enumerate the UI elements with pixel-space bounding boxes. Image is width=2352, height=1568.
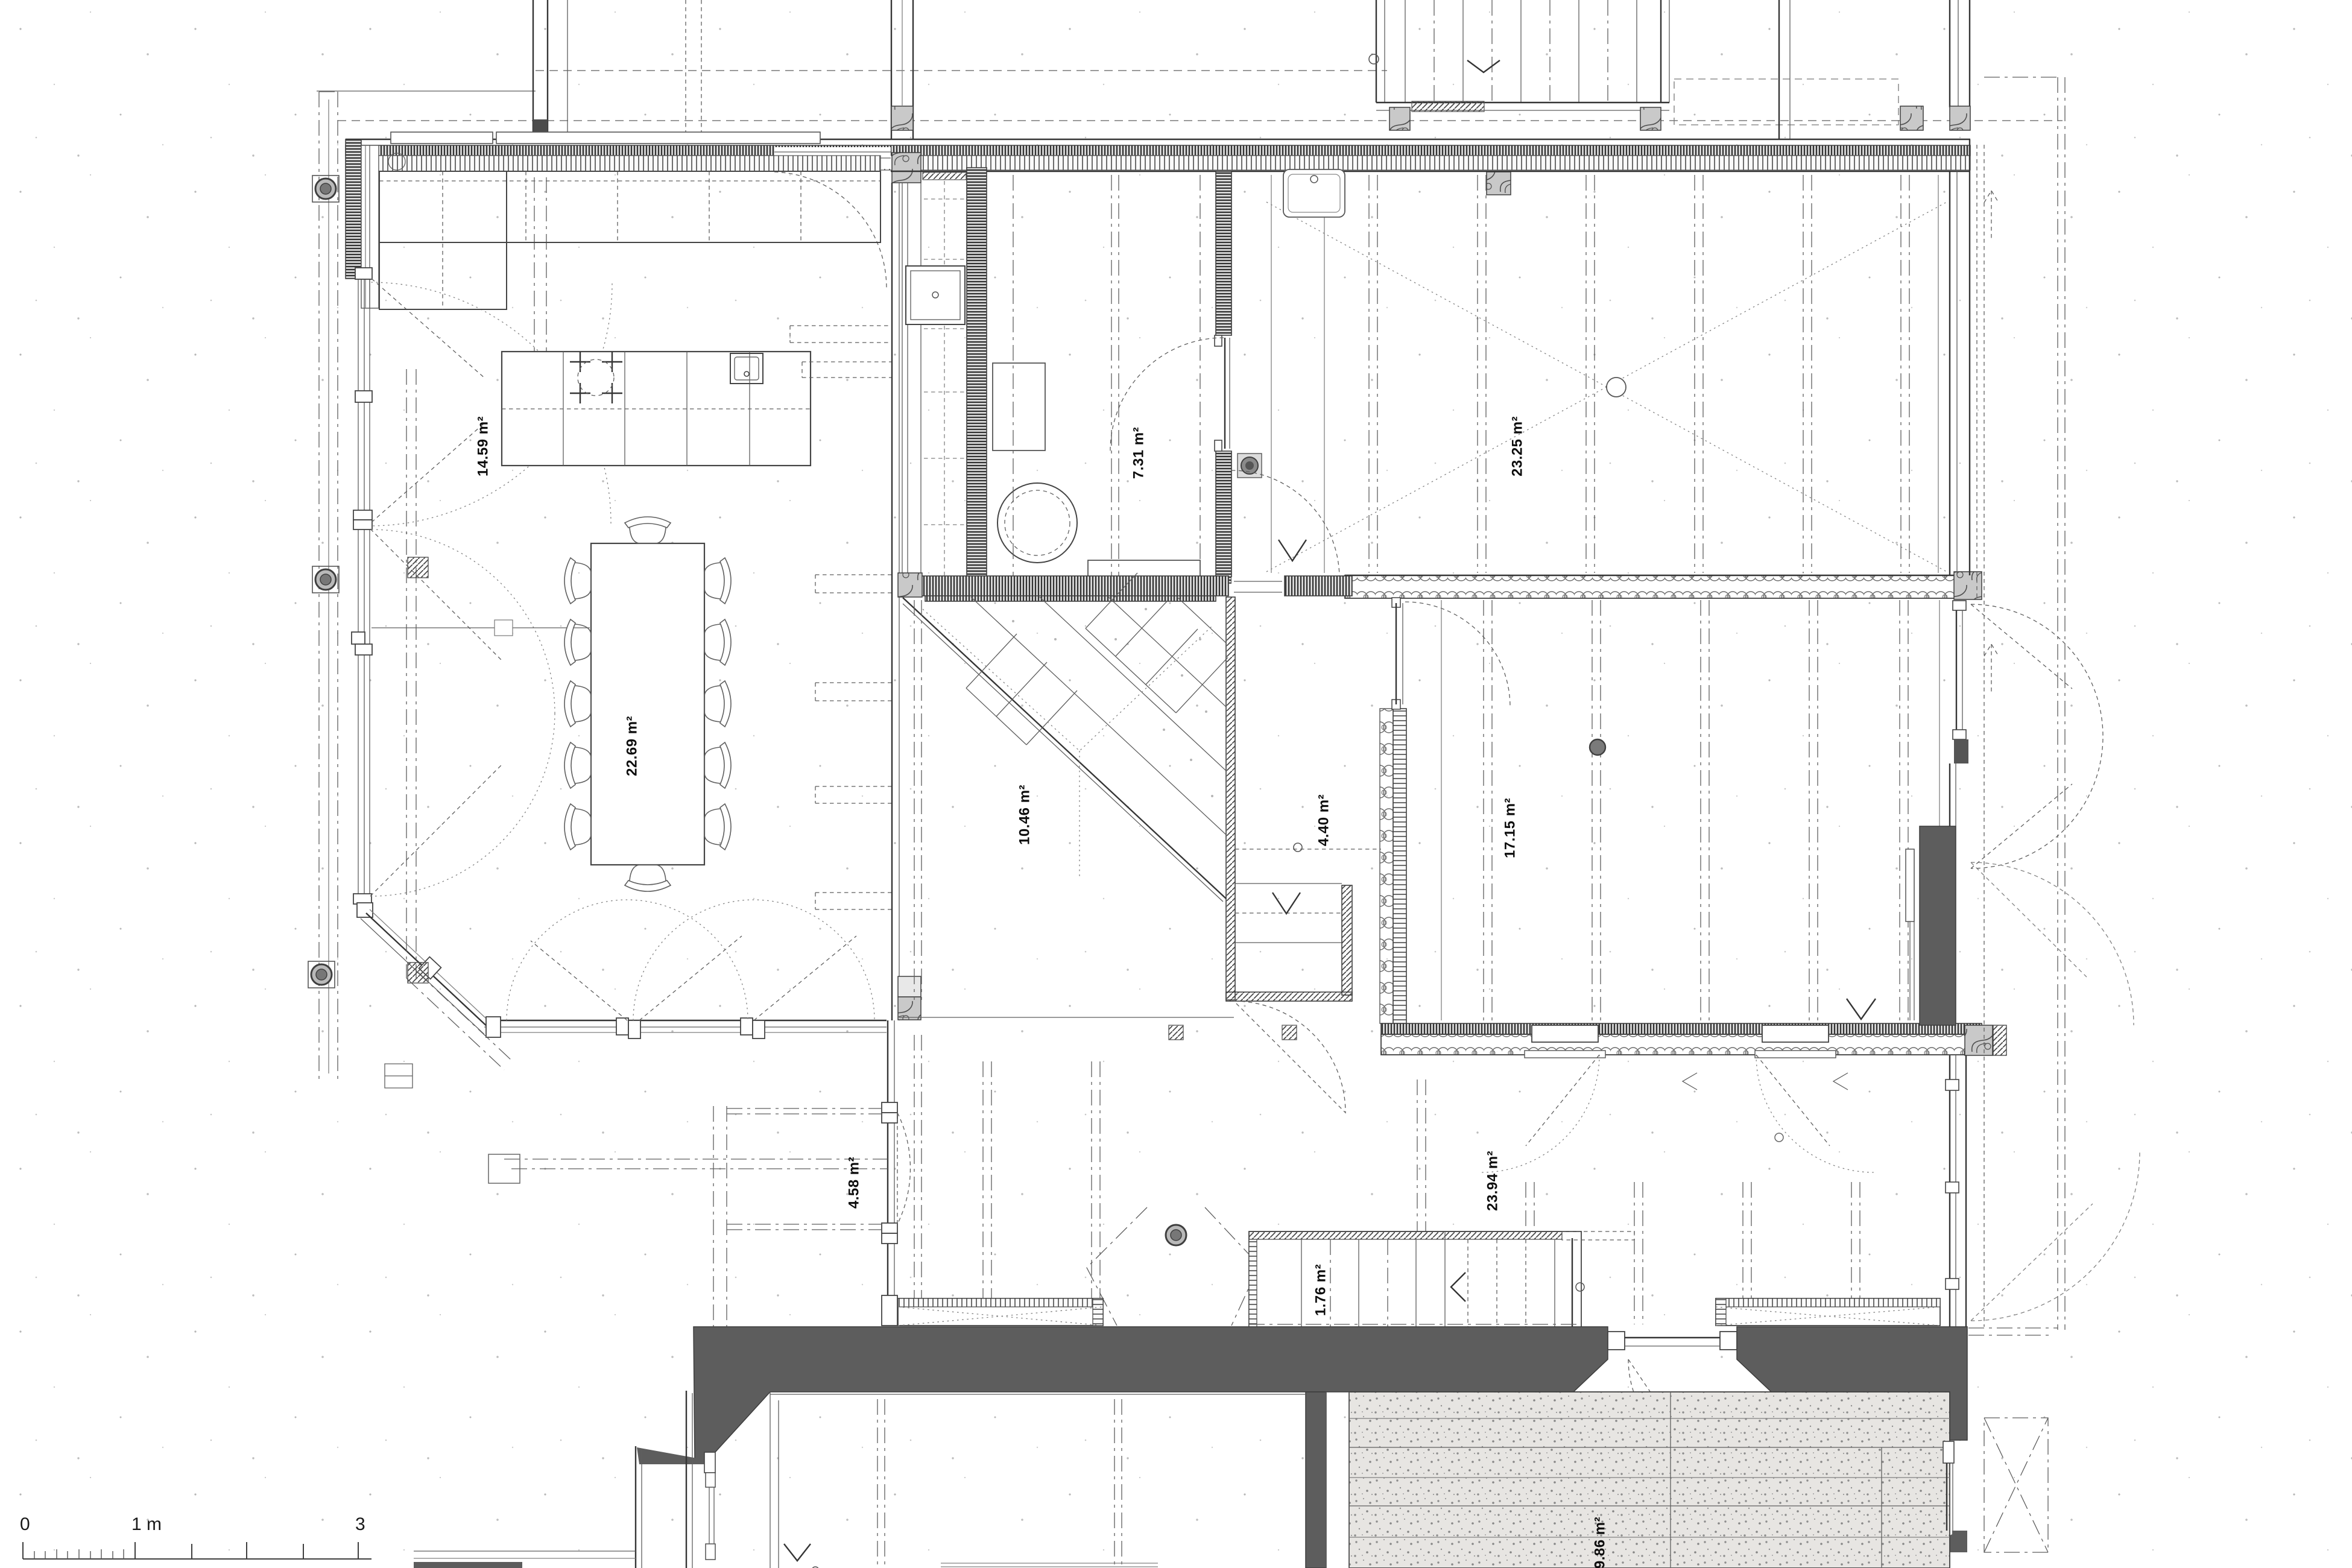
svg-text:23.25 m²: 23.25 m²	[1509, 416, 1525, 476]
svg-text:1.76 m²: 1.76 m²	[1312, 1264, 1329, 1316]
svg-text:17.15 m²: 17.15 m²	[1502, 798, 1518, 858]
svg-text:9.86 m²: 9.86 m²	[1592, 1517, 1608, 1568]
svg-text:7.31 m²: 7.31 m²	[1130, 427, 1146, 479]
svg-text:22.69 m²: 22.69 m²	[624, 716, 640, 776]
svg-text:0: 0	[20, 1514, 30, 1534]
svg-text:4.40 m²: 4.40 m²	[1315, 794, 1332, 846]
svg-text:23.94 m²: 23.94 m²	[1484, 1151, 1500, 1211]
svg-text:14.59 m²: 14.59 m²	[475, 416, 491, 476]
svg-text:3: 3	[355, 1514, 365, 1534]
svg-text:10.46 m²: 10.46 m²	[1016, 785, 1032, 845]
svg-text:4.58 m²: 4.58 m²	[846, 1157, 862, 1209]
svg-text:1 m: 1 m	[131, 1514, 162, 1534]
